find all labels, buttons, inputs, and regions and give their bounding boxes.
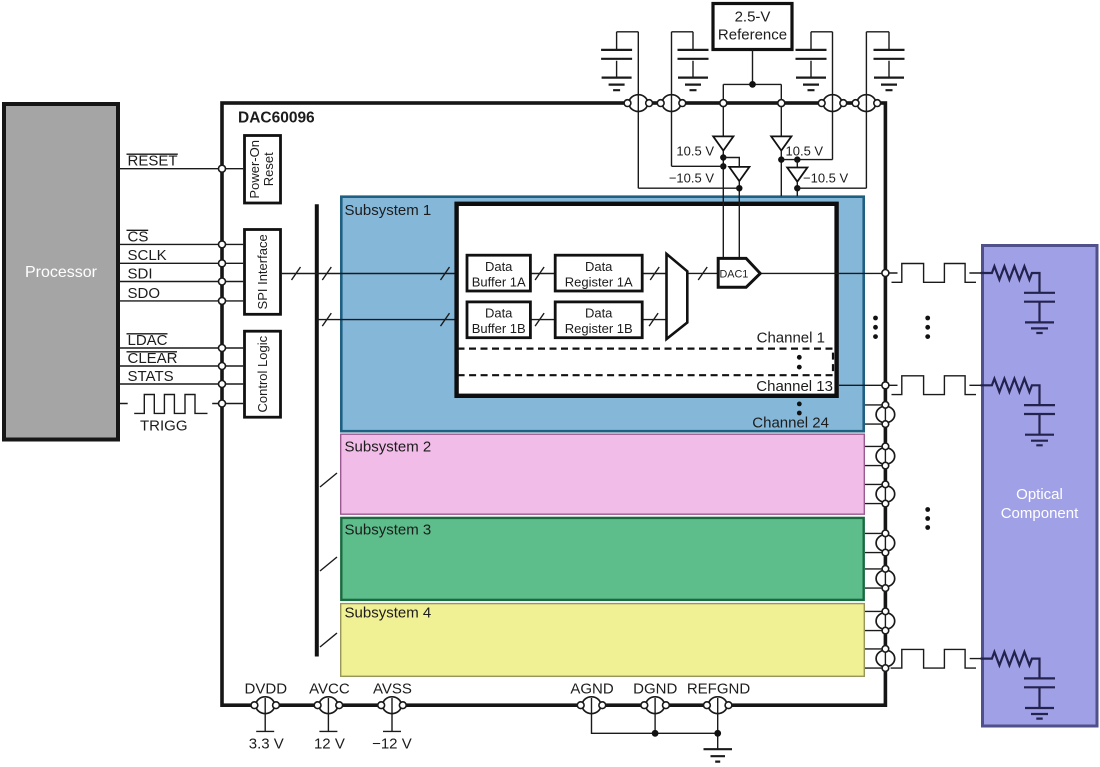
svg-text:Reset: Reset [261,152,276,186]
svg-text:Register 1B: Register 1B [565,321,633,336]
svg-text:DAC1: DAC1 [720,268,749,280]
svg-text:Processor: Processor [25,264,98,281]
svg-text:10.5 V: 10.5 V [676,144,714,159]
svg-text:DVDD: DVDD [245,681,288,698]
svg-text:REFGND: REFGND [687,681,751,698]
svg-text:Data: Data [585,306,613,321]
svg-text:Subsystem 4: Subsystem 4 [345,605,432,622]
svg-text:Channel 13: Channel 13 [756,378,833,395]
svg-text:Subsystem 2: Subsystem 2 [345,438,432,455]
svg-text:Data: Data [585,259,613,274]
svg-text:SPI Interface: SPI Interface [255,234,270,309]
svg-text:2.5-V: 2.5-V [735,9,771,26]
svg-text:AVSS: AVSS [373,681,412,698]
svg-text:−10.5 V: −10.5 V [803,171,849,186]
svg-text:DAC60096: DAC60096 [238,110,315,127]
svg-text:Data: Data [485,259,513,274]
svg-text:Data: Data [485,306,513,321]
svg-text:Channel 24: Channel 24 [752,415,829,432]
svg-text:Control Logic: Control Logic [255,335,270,412]
svg-text:AGND: AGND [570,681,614,698]
svg-text:Component: Component [1001,505,1079,522]
svg-text:3.3 V: 3.3 V [249,736,284,753]
svg-text:SCLK: SCLK [128,247,167,264]
svg-text:DGND: DGND [633,681,677,698]
svg-text:12 V: 12 V [314,736,345,753]
svg-text:Reference: Reference [718,27,787,44]
svg-text:10.5 V: 10.5 V [786,144,824,159]
svg-text:Buffer 1B: Buffer 1B [472,321,526,336]
svg-text:SDO: SDO [128,285,161,302]
svg-text:Channel 1: Channel 1 [757,329,825,346]
svg-text:−10.5 V: −10.5 V [669,171,715,186]
svg-text:Subsystem 3: Subsystem 3 [345,522,432,539]
svg-text:SDI: SDI [128,265,153,282]
svg-text:Subsystem 1: Subsystem 1 [345,202,432,219]
svg-text:Power-On: Power-On [247,140,262,199]
svg-text:Buffer 1A: Buffer 1A [472,275,526,290]
svg-text:STATS: STATS [128,368,174,385]
svg-text:RESET: RESET [128,153,178,170]
svg-text:Register 1A: Register 1A [565,275,633,290]
svg-text:AVCC: AVCC [309,681,350,698]
svg-text:−12 V: −12 V [372,736,412,753]
svg-text:Optical: Optical [1016,486,1063,503]
svg-text:TRIGG: TRIGG [140,418,188,435]
